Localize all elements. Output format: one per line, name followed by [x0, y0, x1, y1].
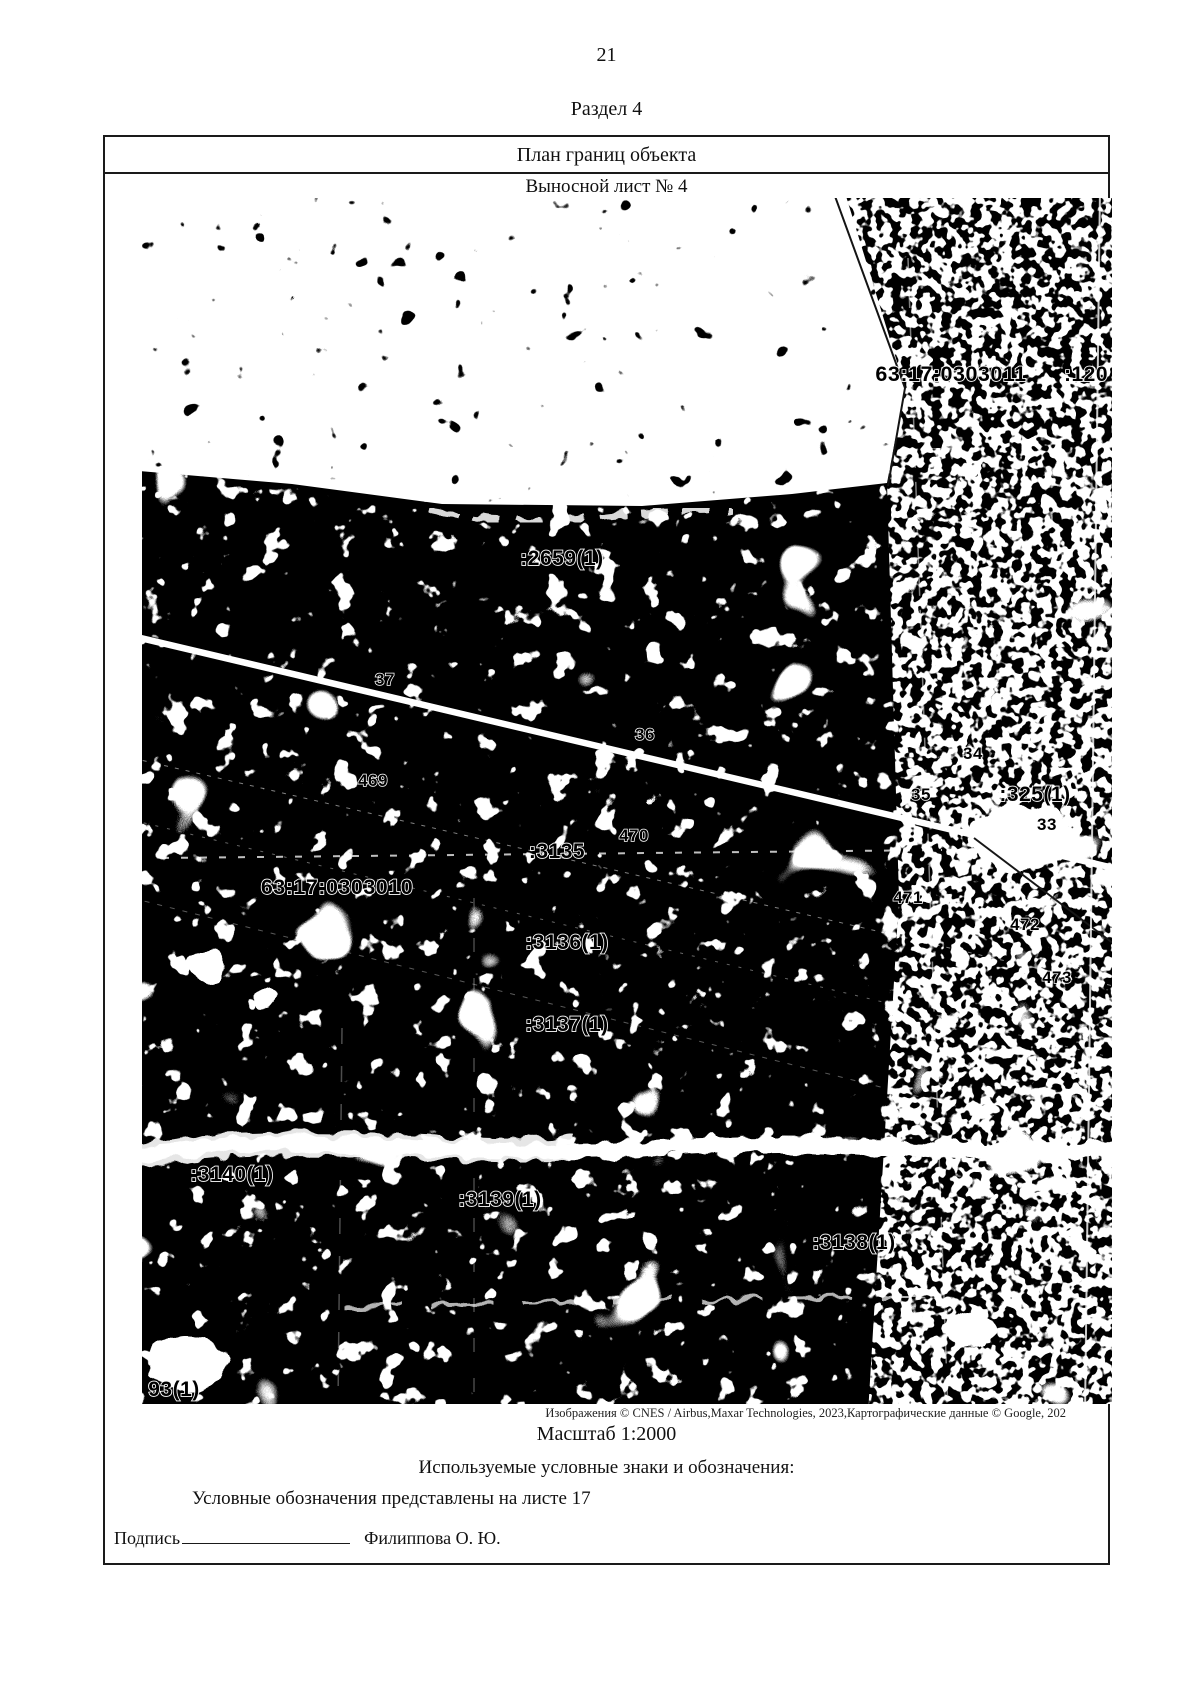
map-label-vertex-469: 469: [358, 771, 388, 790]
map-label-parcel-3135: :3135: [529, 840, 585, 863]
map-label-quarter-0303011: 63:17:0303011: [875, 362, 1026, 386]
map-open-field-speckles: [142, 198, 905, 506]
satellite-map-svg: 63:17:0303011 :120 :2659(1) 37 36 469 47…: [142, 198, 1112, 1404]
map-label-parcel-3140: :3140(1): [190, 1163, 273, 1186]
map-image: 63:17:0303011 :120 :2659(1) 37 36 469 47…: [142, 198, 1112, 1404]
sheet-subtitle: Выносной лист № 4: [105, 174, 1108, 199]
map-label-parcel-2659: :2659(1): [520, 547, 603, 570]
signature-row: ПодписьФилиппова О. Ю.: [114, 1527, 501, 1549]
map-label-vertex-473: 473: [1042, 968, 1072, 987]
map-label-parcel-3137: :3137(1): [525, 1013, 608, 1036]
map-scale: Масштаб 1:2000: [105, 1423, 1108, 1446]
map-label-vertex-35: 35: [911, 785, 931, 804]
section-heading: Раздел 4: [103, 98, 1110, 121]
map-label-vertex-470: 470: [619, 826, 649, 845]
map-label-vertex-33: 33: [1037, 815, 1057, 834]
page-number: 21: [103, 44, 1110, 67]
plan-table: План границ объекта Выносной лист № 4: [103, 135, 1110, 1565]
map-label-parcel-120: :120: [1064, 363, 1108, 386]
map-label-parcel-3138: :3138(1): [812, 1231, 895, 1254]
map-attribution: Изображения © CNES / Airbus,Maxar Techno…: [142, 1406, 1112, 1421]
plan-title: План границ объекта: [105, 137, 1108, 174]
map-label-quarter-0303010: 63:17:0303010: [261, 875, 413, 899]
legend-note: Условные обозначения представлены на лис…: [192, 1488, 591, 1510]
map-label-parcel-325: :325(1): [999, 783, 1070, 806]
map-label-parcel-3139: :3139(1): [458, 1188, 541, 1211]
document-page: 21 Раздел 4 План границ объекта Выносной…: [0, 0, 1200, 1697]
map-label-vertex-37: 37: [375, 670, 395, 689]
signature-label: Подпись: [114, 1528, 180, 1548]
signature-line: [182, 1527, 350, 1544]
legend-heading: Используемые условные знаки и обозначени…: [105, 1457, 1108, 1479]
map-label-vertex-36: 36: [635, 725, 655, 744]
map-label-vertex-472: 472: [1010, 915, 1040, 934]
signature-name: Филиппова О. Ю.: [364, 1528, 501, 1548]
map-label-vertex-471: 471: [893, 888, 923, 907]
map-label-parcel-93: 93(1): [148, 1378, 200, 1401]
map-label-parcel-3136: :3136(1): [525, 931, 608, 954]
map-label-vertex-34: 34: [963, 744, 983, 763]
